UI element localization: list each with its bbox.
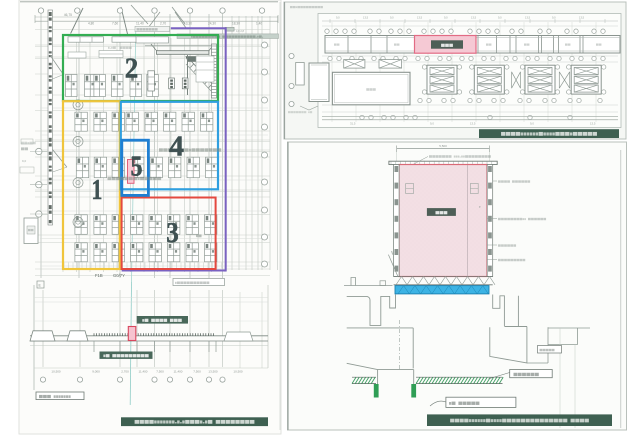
svg-text:13,5: 13,5 [471, 16, 477, 20]
svg-text:9,0: 9,0 [336, 16, 340, 20]
svg-text:9,0: 9,0 [552, 16, 556, 20]
svg-text:13,500: 13,500 [208, 370, 218, 374]
svg-text:2,70: 2,70 [160, 22, 166, 26]
svg-text:9,0: 9,0 [530, 122, 534, 126]
svg-text:11,40: 11,40 [136, 22, 144, 26]
svg-text:24,30: 24,30 [208, 22, 216, 26]
svg-text:G0/7Y: G0/7Y [113, 273, 125, 278]
svg-text:7,500: 7,500 [156, 370, 164, 374]
svg-text:4,80: 4,80 [88, 22, 94, 26]
svg-text:4,8 2,8: 4,8 2,8 [236, 29, 244, 33]
svg-text:13,5: 13,5 [579, 16, 585, 20]
svg-text:11,400: 11,400 [139, 370, 148, 374]
svg-text:13,5: 13,5 [470, 122, 476, 126]
svg-text:5: 5 [131, 150, 143, 182]
svg-text:31,5: 31,5 [350, 122, 356, 126]
svg-text:1: 1 [91, 174, 102, 206]
svg-text:9,0: 9,0 [498, 16, 502, 20]
svg-text:13,5: 13,5 [590, 122, 596, 126]
svg-text:9,0: 9,0 [22, 159, 27, 163]
svg-text:3: 3 [166, 217, 179, 249]
svg-text:13,30: 13,30 [184, 22, 192, 26]
svg-text:7,60: 7,60 [112, 22, 118, 26]
svg-text:2: 2 [125, 53, 139, 85]
svg-text:7,500: 7,500 [193, 370, 201, 374]
svg-text:2,700: 2,700 [121, 370, 129, 374]
svg-text:10,500: 10,500 [51, 370, 61, 374]
svg-text:46,75: 46,75 [64, 13, 72, 17]
svg-text:13,5: 13,5 [363, 16, 369, 20]
svg-text:4: 4 [169, 131, 184, 163]
svg-text:9,000: 9,000 [92, 370, 100, 374]
svg-text:18,30: 18,30 [232, 22, 240, 26]
svg-text:1,40: 1,40 [256, 22, 262, 26]
svg-text:5,500: 5,500 [439, 144, 447, 148]
svg-text:11,400: 11,400 [174, 370, 183, 374]
svg-text:13,5: 13,5 [525, 16, 531, 20]
svg-text:F1B: F1B [95, 273, 103, 278]
svg-text:10,500: 10,500 [233, 370, 243, 374]
svg-text:13,5: 13,5 [417, 16, 423, 20]
svg-text:9,0: 9,0 [430, 122, 434, 126]
svg-text:9,0: 9,0 [444, 16, 448, 20]
svg-text:9,0: 9,0 [390, 16, 394, 20]
